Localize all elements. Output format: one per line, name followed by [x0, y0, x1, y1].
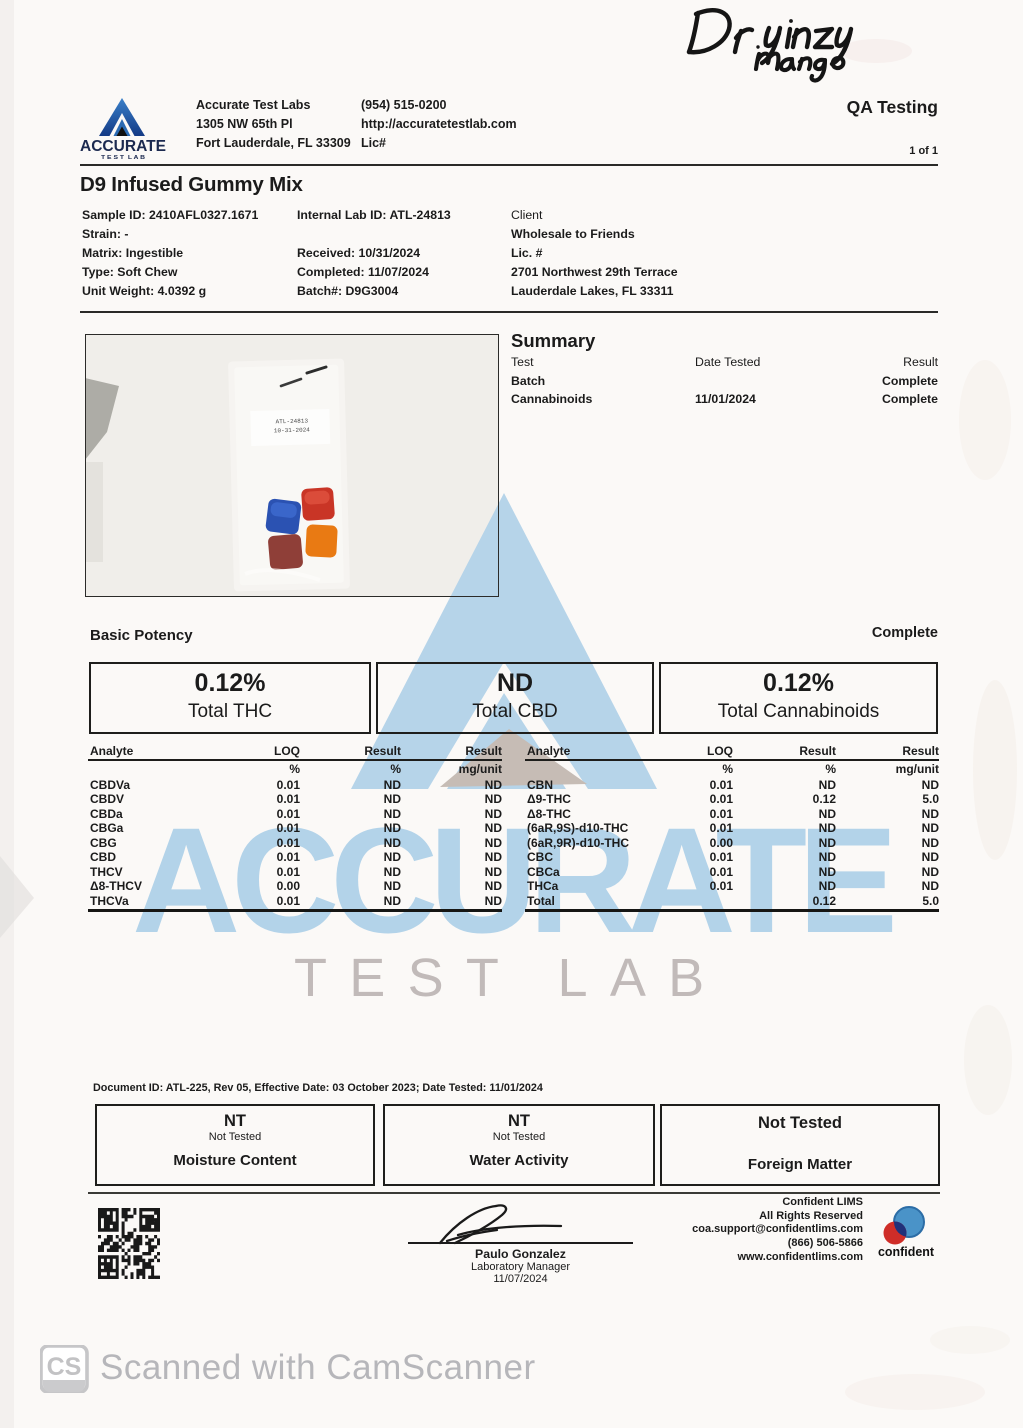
- svg-text:T E S T L A B: T E S T L A B: [101, 155, 145, 161]
- svg-text:confident: confident: [878, 1244, 935, 1259]
- svg-text:ACCURATE: ACCURATE: [80, 138, 166, 155]
- svg-text:TEST LAB: TEST LAB: [294, 948, 727, 1008]
- svg-text:CS: CS: [47, 1353, 82, 1381]
